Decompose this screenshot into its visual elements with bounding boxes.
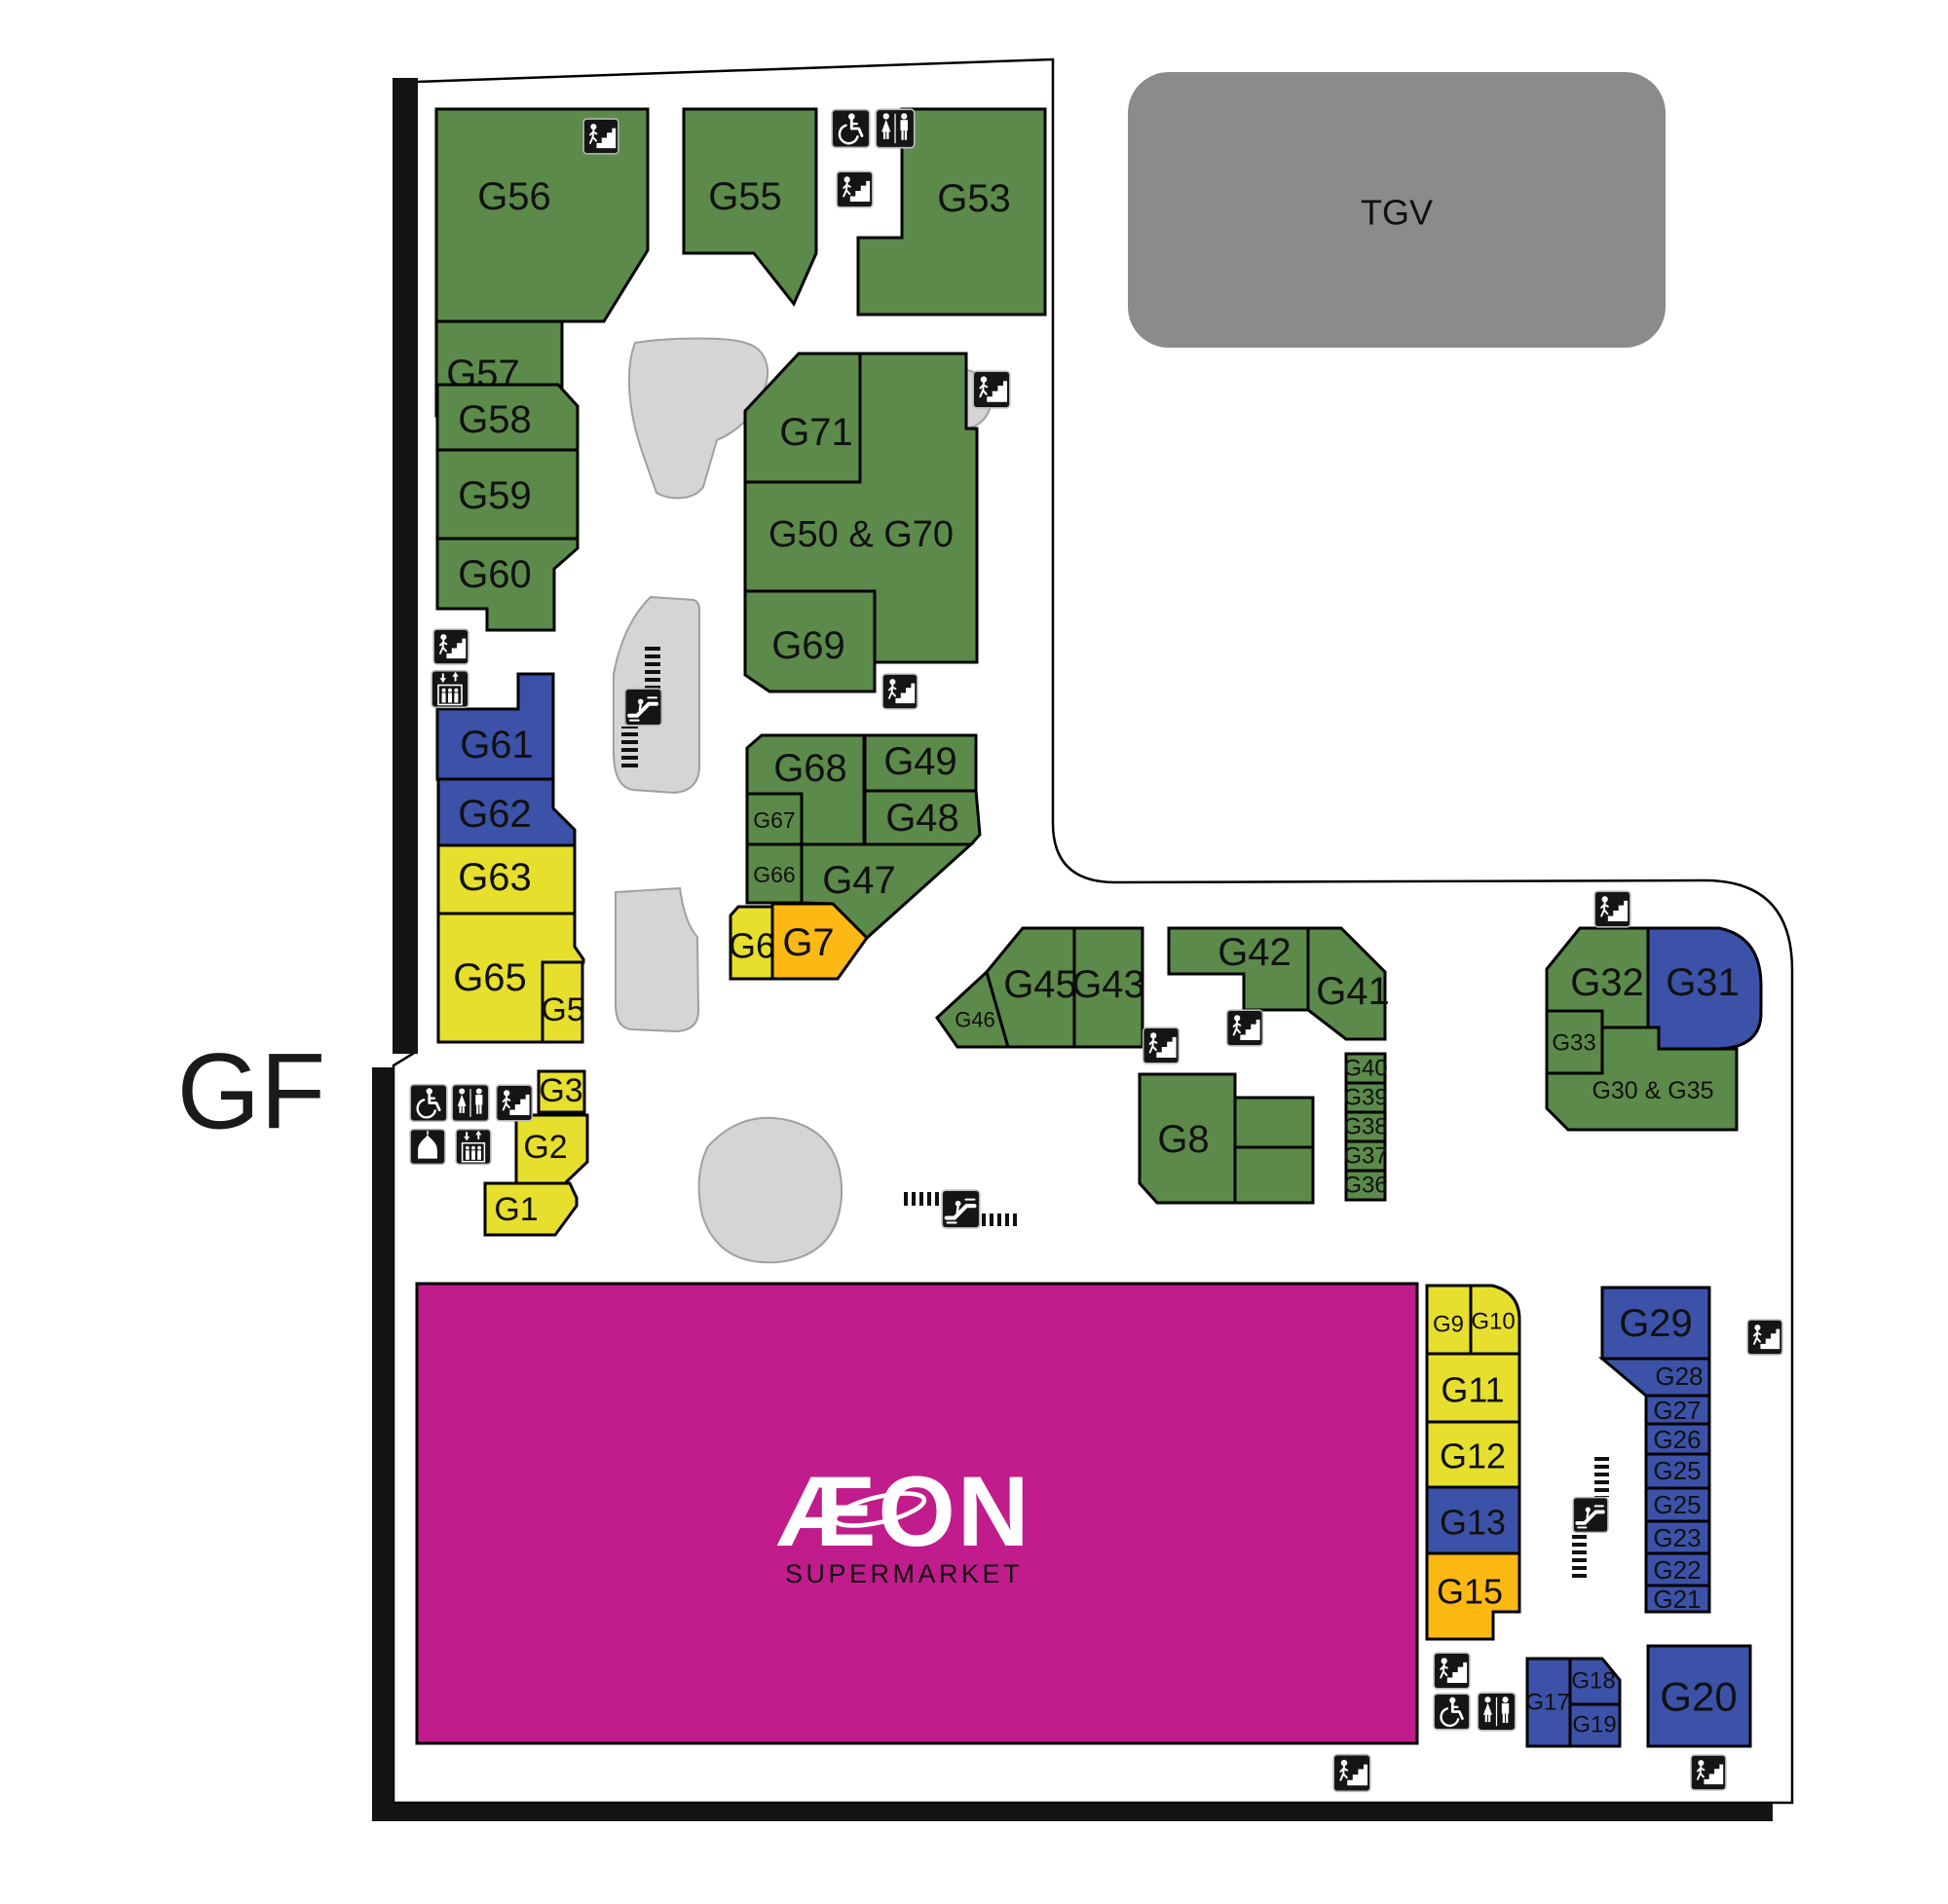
escalator-icon — [1573, 1498, 1608, 1533]
stairs-icon — [1747, 1320, 1782, 1355]
unit-label-G23: G23 — [1653, 1523, 1701, 1552]
unit-G8A — [1235, 1098, 1313, 1147]
unit-G6: G6 — [729, 907, 775, 979]
unit-label-G66: G66 — [753, 862, 795, 887]
unit-label-G37: G37 — [1343, 1143, 1387, 1170]
unit-label-G47: G47 — [822, 859, 896, 902]
unit-G19: G19 — [1570, 1704, 1620, 1746]
stairs-icon — [1594, 891, 1630, 927]
toilet-icon — [452, 1085, 489, 1122]
aeon-supermarket-block: ÆON SUPERMARKET — [417, 1284, 1417, 1743]
unit-G21: G21 — [1646, 1585, 1709, 1614]
unit-G38: G38 — [1343, 1112, 1387, 1141]
unit-label-G2: G2 — [523, 1129, 567, 1166]
elevator-icon — [431, 671, 468, 708]
unit-G10: G10 — [1471, 1286, 1519, 1354]
unit-label-G36: G36 — [1343, 1173, 1387, 1199]
unit-label-G26: G26 — [1653, 1425, 1701, 1454]
unit-label-G55: G55 — [708, 175, 782, 218]
unit-G2: G2 — [516, 1115, 587, 1183]
exterior-wall-left-upper — [393, 78, 418, 1054]
unit-label-G58: G58 — [458, 398, 532, 441]
unit-label-G17: G17 — [1525, 1690, 1569, 1716]
unit-G23: G23 — [1646, 1521, 1709, 1553]
unit-G43: G43 — [1071, 928, 1145, 1047]
unit-G22: G22 — [1646, 1553, 1709, 1586]
unit-label-G27: G27 — [1653, 1396, 1701, 1425]
unit-G20: G20 — [1648, 1646, 1750, 1746]
unit-label-G68: G68 — [773, 747, 847, 790]
unit-label-G8: G8 — [1157, 1118, 1209, 1161]
unit-label-G21: G21 — [1653, 1585, 1701, 1614]
unit-label-G20: G20 — [1660, 1674, 1737, 1720]
unit-label-G30G35: G30 & G35 — [1592, 1077, 1713, 1104]
unit-G49: G49 — [865, 735, 976, 791]
unit-label-G63: G63 — [458, 856, 532, 899]
stairs-icon — [583, 119, 618, 154]
unit-label-G25A: G25 — [1653, 1456, 1701, 1485]
stairs-icon — [497, 1085, 533, 1121]
unit-G66: G66 — [747, 844, 802, 903]
unit-label-G46: G46 — [955, 1008, 995, 1032]
stairs-icon — [1434, 1653, 1470, 1689]
unit-label-G53: G53 — [937, 177, 1011, 220]
unit-G62: G62 — [438, 779, 575, 845]
unit-G59: G59 — [437, 450, 578, 539]
unit-G12: G12 — [1427, 1422, 1519, 1487]
floorplan-stage: TGV ÆON SUPERMARKET G56G57G55G53G58G59G6… — [0, 0, 1948, 1904]
unit-G27: G27 — [1646, 1396, 1709, 1425]
stairs-icon — [1143, 1027, 1180, 1064]
unit-G25A: G25 — [1646, 1454, 1709, 1488]
unit-label-G3: G3 — [539, 1072, 582, 1109]
unit-label-G18: G18 — [1571, 1668, 1615, 1695]
unit-label-G56: G56 — [477, 175, 551, 218]
stairs-icon — [433, 629, 468, 664]
mall-floorplan-svg: TGV ÆON SUPERMARKET G56G57G55G53G58G59G6… — [0, 0, 1948, 1904]
stairs-icon — [1333, 1755, 1370, 1792]
unit-G26: G26 — [1646, 1424, 1709, 1454]
unit-label-G48: G48 — [885, 797, 959, 840]
wheelchair-icon — [1434, 1694, 1470, 1730]
stairs-icon — [882, 674, 918, 709]
unit-G36: G36 — [1343, 1171, 1387, 1200]
stairs-icon — [837, 171, 873, 207]
unit-G39: G39 — [1343, 1083, 1387, 1112]
unit-label-G43: G43 — [1071, 963, 1145, 1006]
unit-label-G31: G31 — [1666, 961, 1740, 1004]
unit-label-G25B: G25 — [1653, 1490, 1701, 1519]
unit-G69: G69 — [745, 591, 875, 691]
wheelchair-icon — [410, 1085, 447, 1122]
unit-G8: G8 — [1140, 1074, 1235, 1203]
elevator-icon — [456, 1130, 491, 1165]
aeon-supermarket-label: SUPERMARKET — [785, 1559, 1023, 1588]
toilet-icon — [1478, 1693, 1516, 1731]
unit-label-G5: G5 — [541, 991, 584, 1028]
stairs-icon — [1691, 1755, 1726, 1790]
unit-label-G6: G6 — [729, 926, 775, 966]
stairs-icon — [973, 371, 1010, 408]
unit-G11: G11 — [1427, 1354, 1519, 1422]
unit-G17: G17 — [1525, 1659, 1570, 1746]
unit-label-G71: G71 — [779, 411, 853, 454]
unit-G40: G40 — [1343, 1054, 1387, 1083]
unit-label-G22: G22 — [1653, 1555, 1701, 1585]
unit-label-G62: G62 — [458, 793, 532, 836]
wheelchair-icon — [832, 110, 870, 148]
unit-label-G19: G19 — [1572, 1712, 1616, 1738]
unit-G8B — [1235, 1147, 1313, 1203]
escalator-icon — [625, 689, 662, 726]
unit-label-G13: G13 — [1440, 1503, 1506, 1543]
unit-label-G69: G69 — [771, 624, 845, 667]
unit-G58: G58 — [437, 385, 578, 450]
unit-label-G11: G11 — [1441, 1370, 1504, 1410]
unit-label-G59: G59 — [458, 474, 532, 517]
unit-label-G10: G10 — [1471, 1309, 1515, 1335]
exterior-wall-left-lower — [372, 1067, 393, 1821]
aeon-logo-text: ÆON — [777, 1456, 1031, 1567]
floor-label: GF — [177, 1032, 326, 1152]
tgv-block: TGV — [1128, 72, 1666, 348]
unit-label-G67: G67 — [753, 807, 795, 833]
unit-label-G7: G7 — [782, 921, 834, 964]
unit-label-G28: G28 — [1655, 1362, 1703, 1391]
unit-G48: G48 — [865, 791, 980, 844]
unit-label-G9: G9 — [1433, 1312, 1464, 1338]
unit-G67: G67 — [747, 794, 802, 844]
unit-G37: G37 — [1343, 1141, 1387, 1171]
unit-G3: G3 — [539, 1071, 584, 1112]
unit-label-G29: G29 — [1619, 1302, 1693, 1345]
unit-G29: G29 — [1602, 1288, 1709, 1359]
toilet-icon — [876, 109, 914, 147]
unit-label-G38: G38 — [1343, 1114, 1387, 1140]
unit-G31: G31 — [1648, 928, 1761, 1049]
unit-G63: G63 — [438, 845, 575, 914]
stairs-icon — [1227, 1010, 1263, 1046]
unit-label-G41: G41 — [1316, 970, 1390, 1013]
unit-label-G1: G1 — [494, 1191, 538, 1228]
unit-G13: G13 — [1427, 1487, 1519, 1553]
unit-label-G33: G33 — [1552, 1030, 1595, 1057]
unit-label-G61: G61 — [460, 724, 534, 766]
tgv-label: TGV — [1361, 193, 1433, 233]
open-area — [699, 1118, 842, 1263]
unit-label-G49: G49 — [883, 740, 957, 783]
unit-label-G42: G42 — [1217, 931, 1292, 974]
unit-label-G45: G45 — [1003, 963, 1077, 1006]
unit-label-G15: G15 — [1437, 1572, 1503, 1612]
unit-label-G12: G12 — [1440, 1437, 1506, 1476]
unit-G9: G9 — [1427, 1286, 1471, 1354]
escalator-icon — [942, 1190, 980, 1228]
unit-label-G39: G39 — [1343, 1085, 1387, 1111]
unit-label-G50G70: G50 & G70 — [768, 514, 954, 555]
unit-label-G40: G40 — [1343, 1056, 1387, 1082]
unit-G5: G5 — [541, 962, 584, 1042]
unit-label-G65: G65 — [453, 956, 527, 999]
exterior-wall-bottom — [372, 1804, 1773, 1821]
prayer-icon — [410, 1130, 445, 1165]
unit-label-G60: G60 — [458, 553, 532, 596]
unit-G33: G33 — [1547, 1011, 1602, 1073]
unit-G25B: G25 — [1646, 1488, 1709, 1521]
unit-label-G32: G32 — [1570, 961, 1644, 1004]
